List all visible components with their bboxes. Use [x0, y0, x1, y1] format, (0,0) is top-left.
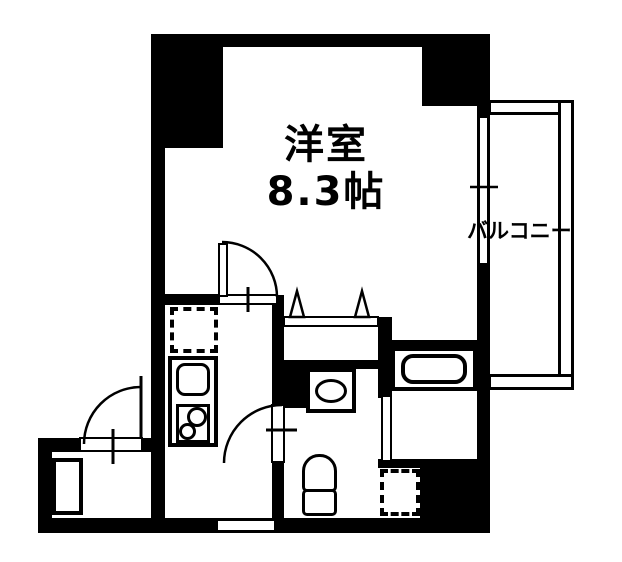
balcony-label: バルコニー [467, 215, 572, 245]
wall-entrance-top-a [38, 438, 80, 452]
bathtub-inner [401, 354, 467, 384]
floor-plan: 洋室 8.3帖 バルコニー [0, 0, 622, 562]
entry-door-arc [84, 387, 141, 444]
wall-left [151, 34, 165, 533]
washing-machine-space [380, 469, 420, 516]
washroom-door-leaf [271, 404, 285, 463]
room-label: 洋室 8.3帖 [228, 122, 424, 216]
bath-door [381, 397, 392, 460]
closet-front-bar [283, 316, 379, 327]
stove-burner-small [179, 423, 196, 440]
room-name: 洋室 [228, 122, 424, 169]
living-room-door-arc [222, 242, 277, 297]
balcony-wall-right [558, 100, 574, 390]
wall-bath-left-upper [378, 348, 392, 398]
wall-kitchen-top [165, 294, 222, 305]
balcony-wall-bottom [488, 374, 574, 390]
shoe-cabinet [52, 458, 83, 515]
wall-entrance-left [38, 438, 52, 533]
washbasin-bowl [315, 379, 347, 403]
bottom-wall-insert [216, 519, 276, 532]
room-size: 8.3帖 [228, 169, 424, 216]
wall-kitchen-right-lower [272, 461, 284, 518]
toilet-tank [302, 489, 337, 516]
toilet-bowl [302, 454, 337, 492]
refrigerator-space [170, 307, 218, 353]
wall-basin-block [282, 366, 308, 408]
closet-fold-triangle-right [355, 291, 369, 317]
wall-block-bottom-right [420, 459, 490, 533]
entry-door-sill [79, 437, 143, 452]
wall-bath-left-lower [378, 459, 420, 468]
kitchen-sink [176, 363, 210, 396]
closet-fold-triangle-left [290, 291, 304, 317]
wall-block-top-right [422, 34, 490, 106]
living-room-door-leaf [218, 243, 228, 297]
